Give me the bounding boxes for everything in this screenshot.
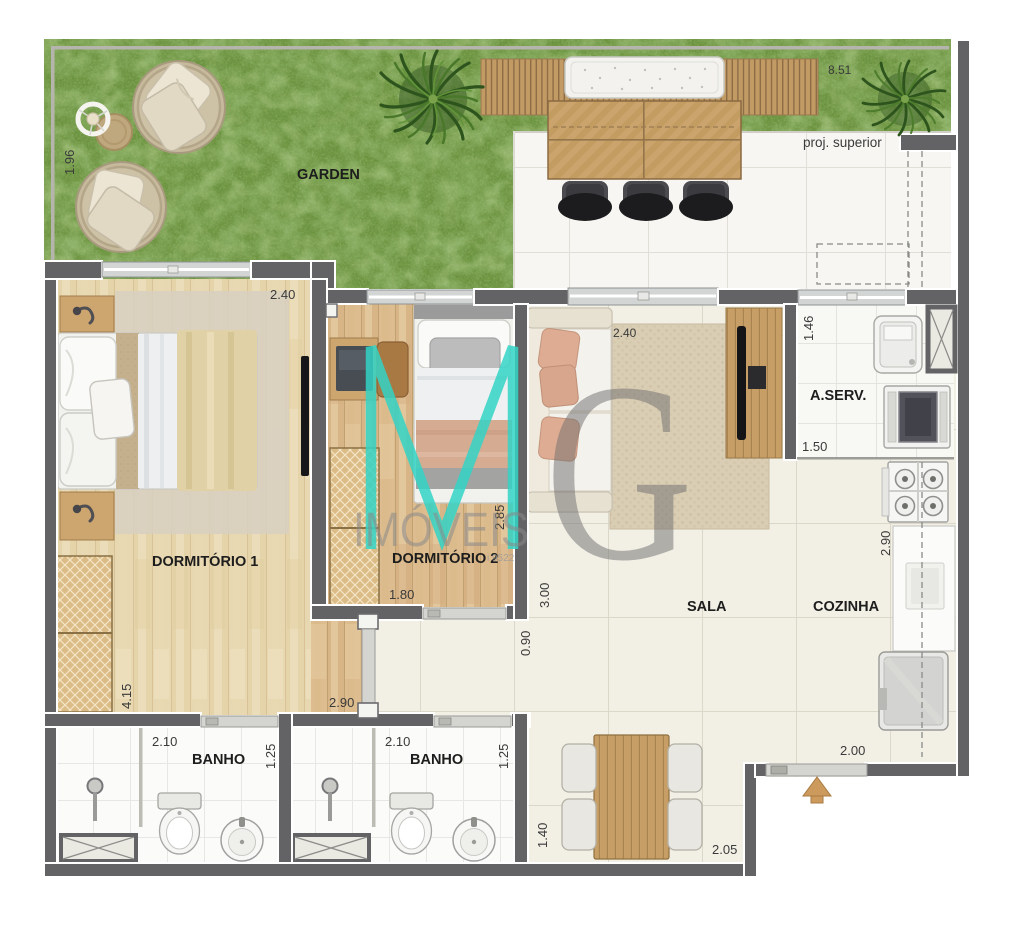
svg-text:1.25: 1.25 — [263, 744, 278, 769]
svg-text:8.51: 8.51 — [828, 63, 852, 77]
svg-text:1.50: 1.50 — [802, 439, 827, 454]
svg-text:2.90: 2.90 — [878, 531, 893, 556]
svg-text:1.80: 1.80 — [389, 587, 414, 602]
svg-text:2.00: 2.00 — [840, 743, 865, 758]
svg-text:2.05: 2.05 — [712, 842, 737, 857]
svg-text:G: G — [545, 331, 693, 615]
svg-text:2.10: 2.10 — [385, 734, 410, 749]
svg-text:0.90: 0.90 — [518, 631, 533, 656]
svg-text:GARDEN: GARDEN — [297, 167, 360, 183]
svg-text:COZINHA: COZINHA — [813, 599, 880, 615]
svg-text:A.SERV.: A.SERV. — [810, 388, 866, 404]
svg-text:1.46: 1.46 — [801, 316, 816, 341]
svg-text:BANHO: BANHO — [410, 752, 463, 768]
svg-text:1.25: 1.25 — [496, 744, 511, 769]
svg-text:i 9522: i 9522 — [487, 553, 515, 564]
svg-text:DORMITÓRIO 1: DORMITÓRIO 1 — [152, 552, 258, 570]
svg-text:2.90: 2.90 — [329, 695, 354, 710]
svg-text:2.40: 2.40 — [270, 287, 295, 302]
svg-text:4.15: 4.15 — [119, 684, 134, 709]
svg-text:2.10: 2.10 — [152, 734, 177, 749]
svg-text:1.96: 1.96 — [62, 150, 77, 175]
svg-text:IMÓVEIS: IMÓVEIS — [353, 503, 529, 557]
svg-text:proj. superior: proj. superior — [803, 135, 882, 150]
svg-text:SALA: SALA — [687, 599, 727, 615]
svg-text:BANHO: BANHO — [192, 752, 245, 768]
svg-text:1.40: 1.40 — [535, 823, 550, 848]
